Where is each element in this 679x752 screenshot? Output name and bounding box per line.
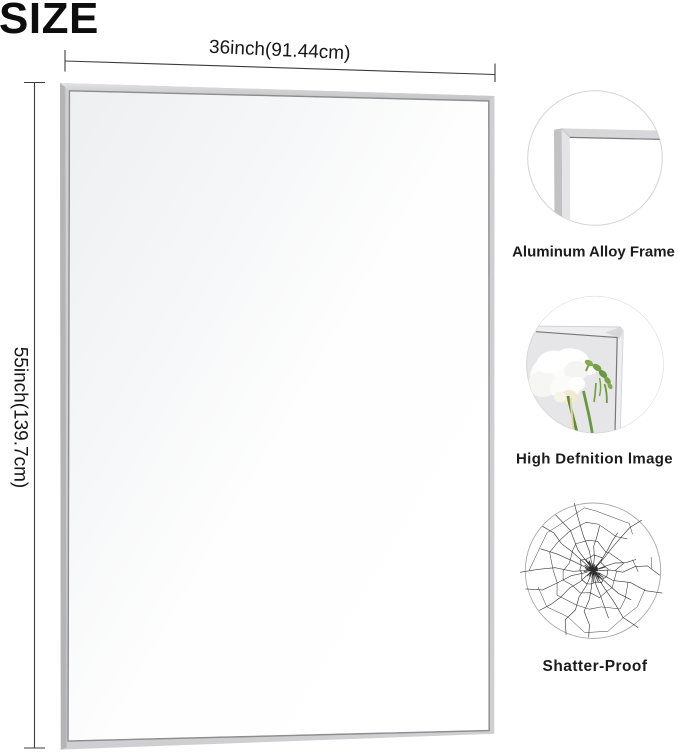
svg-text:55inch(139.7cm): 55inch(139.7cm): [10, 347, 31, 489]
svg-text:Aluminum Alloy Frame: Aluminum Alloy Frame: [512, 244, 675, 261]
svg-text:SIZE: SIZE: [0, 0, 99, 43]
svg-text:36inch(91.44cm): 36inch(91.44cm): [209, 37, 351, 64]
svg-text:Shatter-Proof: Shatter-Proof: [543, 658, 648, 675]
svg-text:High Defnition lmage: High Defnition lmage: [516, 451, 673, 468]
